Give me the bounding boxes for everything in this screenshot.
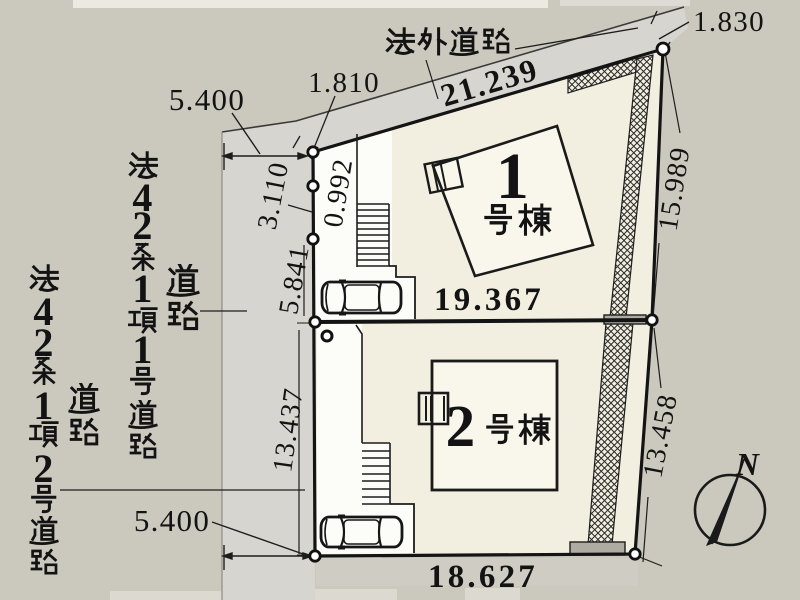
svg-text:1: 1 <box>132 266 153 311</box>
svg-text:2: 2 <box>33 446 54 491</box>
svg-text:1: 1 <box>496 140 530 213</box>
svg-text:1.830: 1.830 <box>693 6 765 38</box>
svg-text:19.367: 19.367 <box>434 282 544 318</box>
svg-text:5.400: 5.400 <box>169 82 245 117</box>
svg-text:5.400: 5.400 <box>134 503 210 538</box>
svg-text:2: 2 <box>132 203 153 248</box>
svg-text:18.627: 18.627 <box>428 559 538 595</box>
svg-text:1: 1 <box>132 327 153 372</box>
svg-text:N: N <box>735 446 761 482</box>
svg-text:1.810: 1.810 <box>308 67 380 99</box>
svg-text:2: 2 <box>446 393 477 459</box>
